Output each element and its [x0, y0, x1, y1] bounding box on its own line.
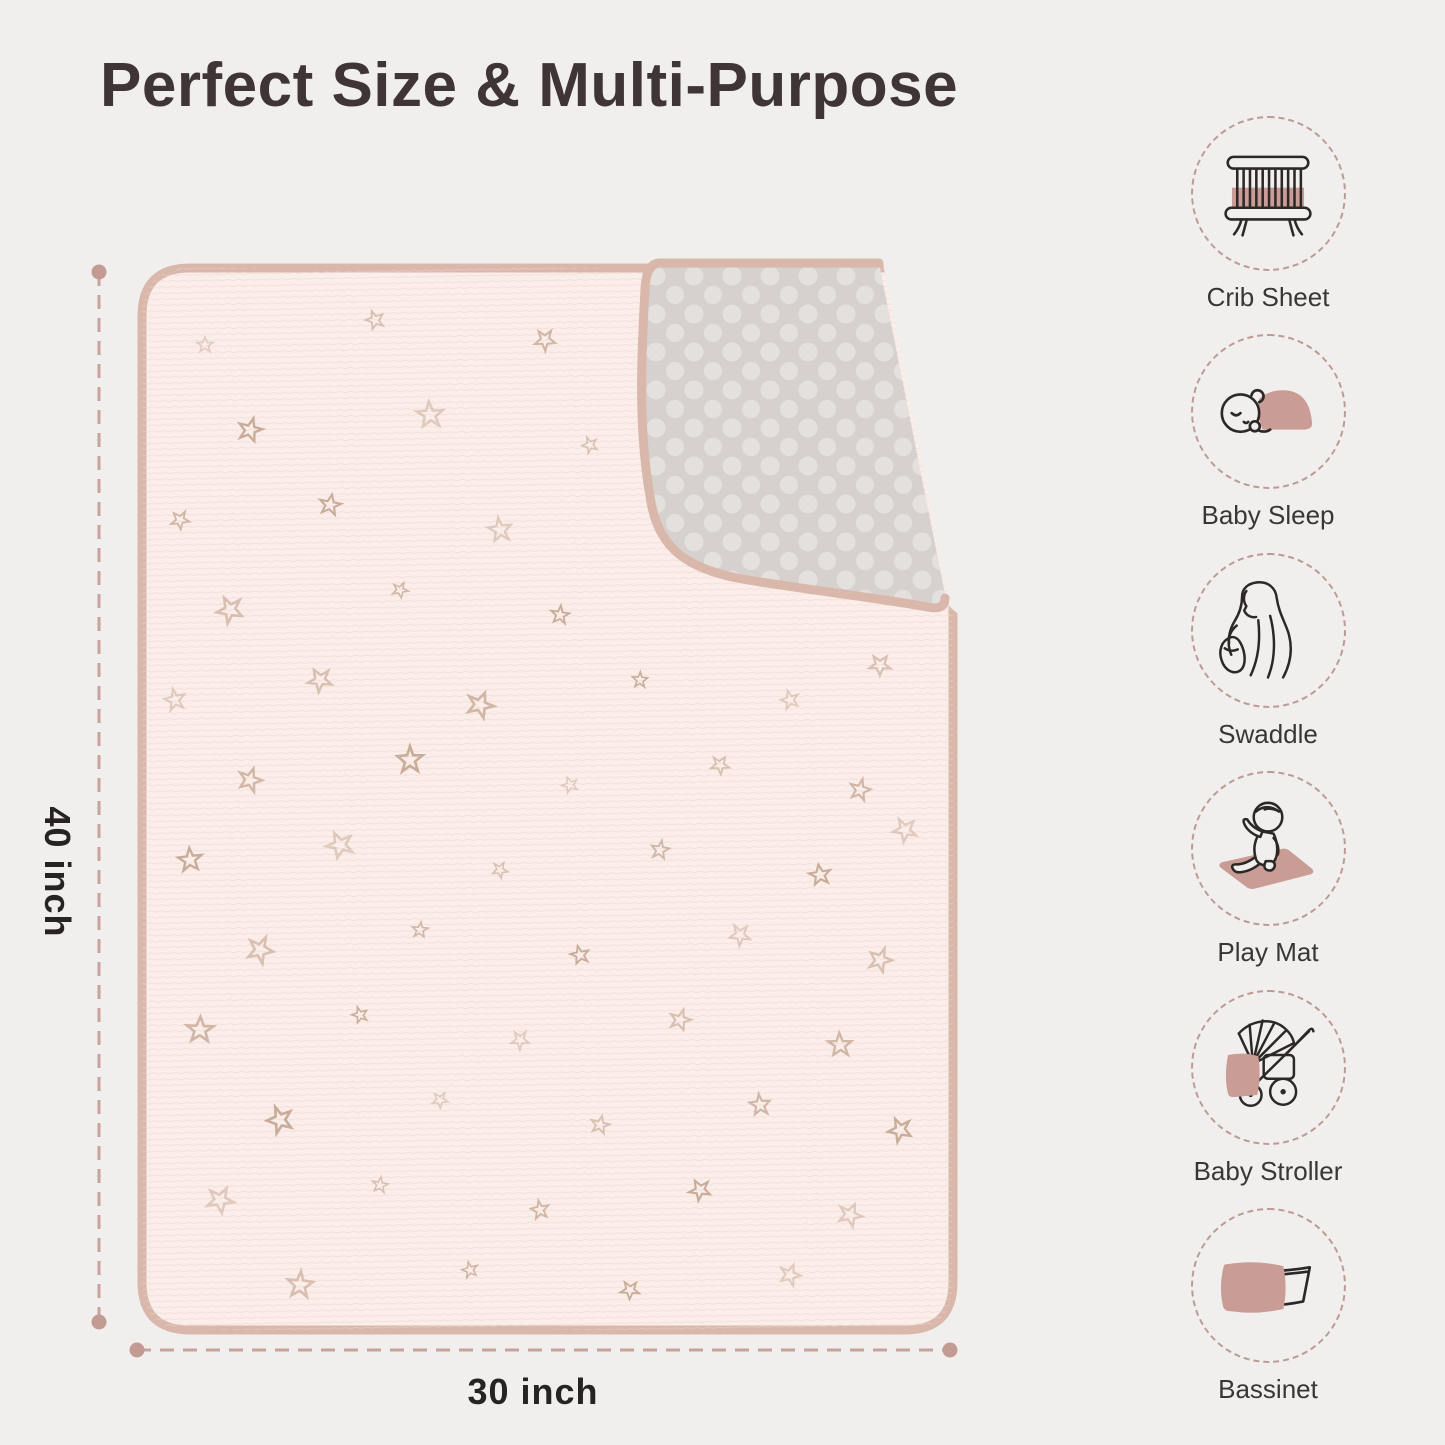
use-case-play-mat: Play Mat — [1158, 771, 1378, 968]
use-case-label: Crib Sheet — [1158, 282, 1378, 313]
stroller-icon — [1214, 1014, 1322, 1122]
use-case-swaddle: Swaddle — [1158, 553, 1378, 750]
width-dimension-label: 30 inch — [467, 1371, 598, 1413]
height-dimension-label: 40 inch — [36, 806, 78, 937]
use-case-label: Baby Sleep — [1158, 500, 1378, 531]
dashed-circle — [1191, 771, 1346, 926]
use-case-label: Baby Stroller — [1158, 1156, 1378, 1187]
dashed-circle — [1191, 334, 1346, 489]
swaddle-mother-icon — [1214, 577, 1322, 685]
bassinet-icon — [1213, 1231, 1323, 1341]
dashed-circle — [1191, 990, 1346, 1145]
dashed-circle — [1191, 1208, 1346, 1363]
crib-icon — [1215, 141, 1321, 247]
product-infographic: Perfect Size & Multi-Purpose — [0, 0, 1445, 1445]
height-dimension-line — [92, 265, 107, 1330]
dashed-circle — [1191, 116, 1346, 271]
use-case-baby-stroller: Baby Stroller — [1158, 990, 1378, 1187]
play-mat-baby-icon — [1213, 794, 1323, 904]
use-case-bassinet: Bassinet — [1158, 1208, 1378, 1405]
use-case-label: Swaddle — [1158, 719, 1378, 750]
use-case-label: Bassinet — [1158, 1374, 1378, 1405]
sleeping-baby-icon — [1213, 357, 1323, 467]
use-case-label: Play Mat — [1158, 937, 1378, 968]
width-dimension-line — [130, 1343, 958, 1358]
use-case-crib-sheet: Crib Sheet — [1158, 116, 1378, 313]
use-case-baby-sleep: Baby Sleep — [1158, 334, 1378, 531]
dashed-circle — [1191, 553, 1346, 708]
